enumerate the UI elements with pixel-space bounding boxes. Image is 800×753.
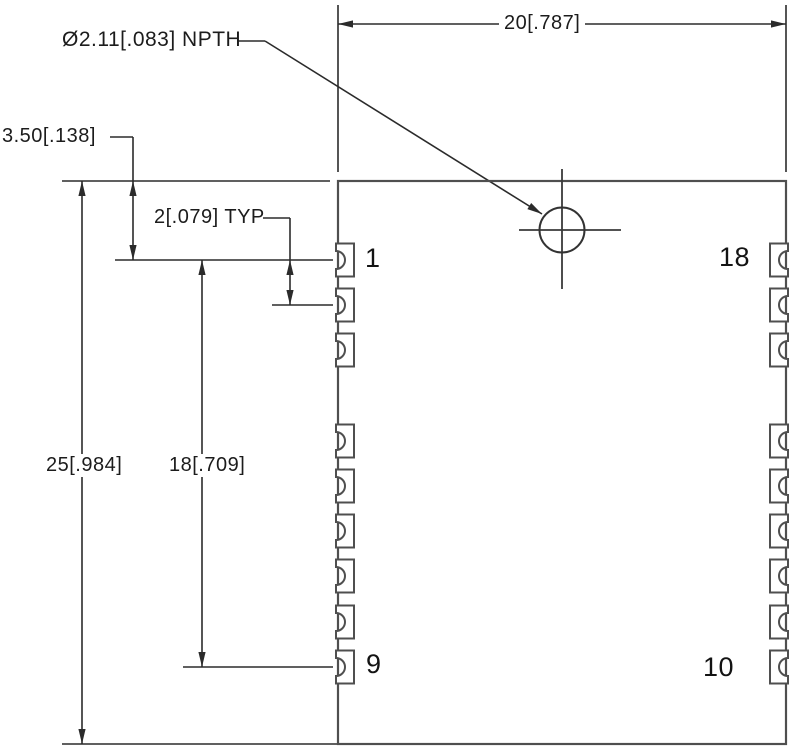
width-dimension-label: 20[.787] — [499, 12, 585, 35]
dimension-arrowhead — [129, 181, 136, 196]
dimension-arrowhead — [78, 729, 85, 744]
dimension-arrowhead — [286, 260, 293, 275]
dimension-arrowhead — [78, 181, 85, 196]
mechanical-drawing-canvas: Ø2.11[.083] NPTH 20[.787] 3.50[.138] 2[.… — [0, 0, 800, 753]
dimension-arrowhead — [771, 20, 786, 27]
pin1-offset-dimension-label: 3.50[.138] — [2, 125, 96, 148]
drawing-linework — [0, 0, 800, 753]
pin-number-18: 18 — [719, 242, 750, 273]
dimension-line — [265, 41, 542, 214]
dimension-arrowhead — [286, 290, 293, 305]
pin-number-10: 10 — [703, 652, 734, 683]
dimension-arrowhead — [198, 652, 205, 667]
pitch-dimension-label: 2[.079] TYP — [154, 206, 265, 229]
pin-number-9: 9 — [366, 649, 382, 680]
dimension-arrowhead — [129, 245, 136, 260]
overall-height-dimension-label: 25[.984] — [41, 454, 127, 477]
pin-number-1: 1 — [365, 243, 381, 274]
hole-diameter-callout: Ø2.11[.083] NPTH — [62, 28, 241, 52]
dimension-arrowhead — [198, 260, 205, 275]
dimension-arrowhead — [338, 20, 353, 27]
pin-span-dimension-label: 18[.709] — [164, 454, 250, 477]
dimension-arrowhead — [527, 203, 544, 217]
